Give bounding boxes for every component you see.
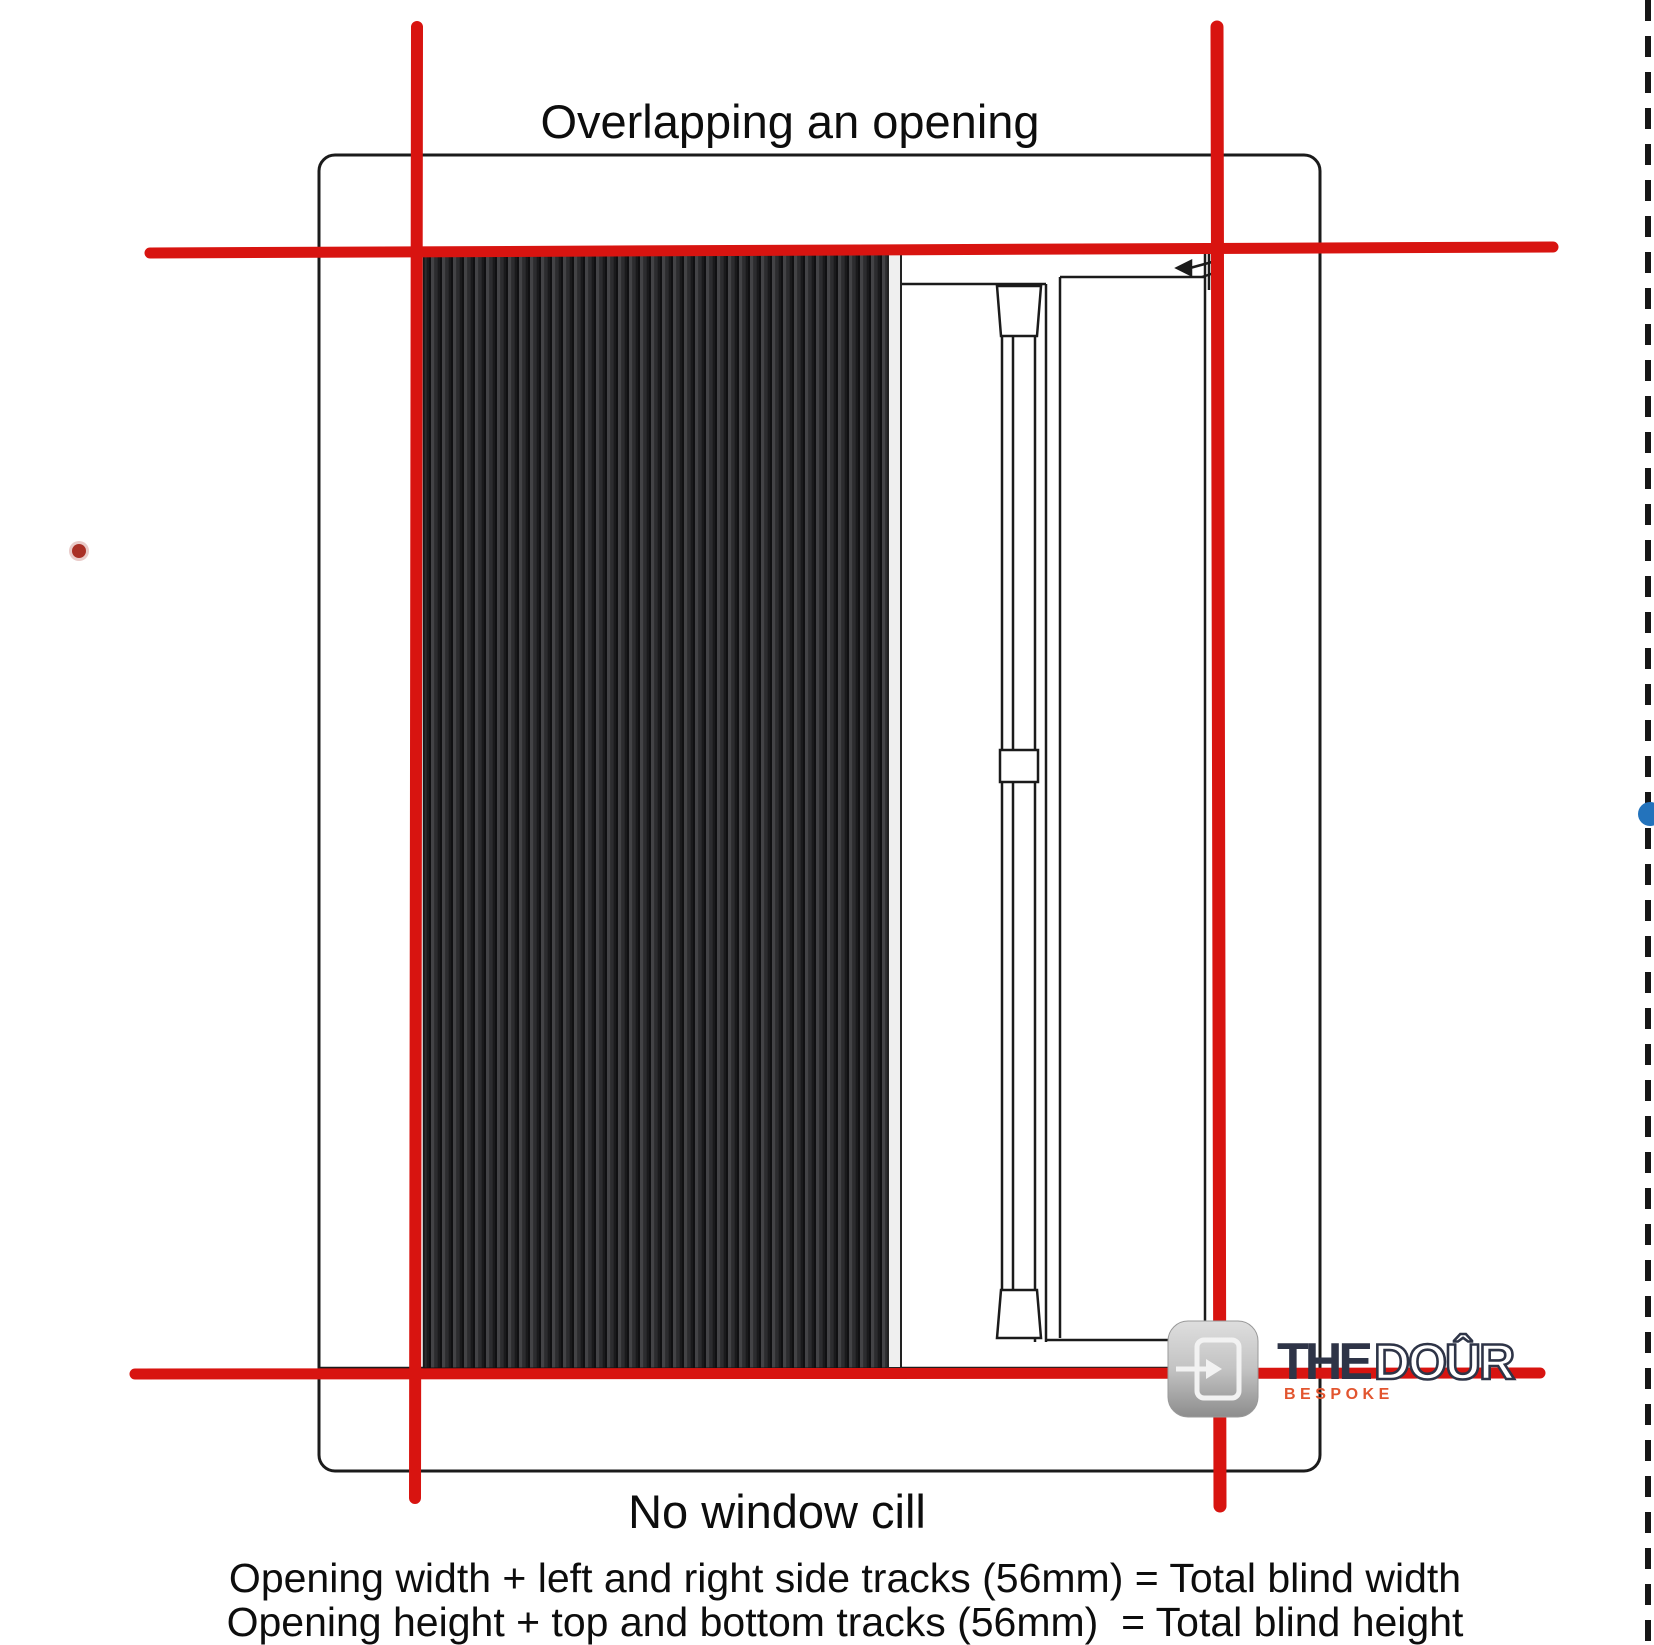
red-dot-marker [72, 544, 86, 558]
blue-dot-marker [1638, 802, 1654, 826]
diagram-title: Overlapping an opening [0, 94, 1580, 149]
measure-line-left [415, 27, 417, 1498]
brand-word-bespoke: BESPOKE [1284, 1386, 1394, 1403]
window-diagram: THE DOÛR BESPOKE [0, 0, 1654, 1643]
measuring-guide-page: THE DOÛR BESPOKE Overlapping an opening … [0, 0, 1654, 1643]
brand-word-door: DOÛR [1374, 1333, 1515, 1390]
pleated-blind [424, 251, 901, 1368]
brand-word-the: THE [1277, 1333, 1371, 1391]
pleated-blind-leading-rail [888, 251, 901, 1368]
stile-top-bracket [997, 286, 1041, 336]
measure-line-top [150, 247, 1553, 253]
formula-width: Opening width + left and right side trac… [36, 1556, 1654, 1600]
stile-handle [1000, 750, 1038, 782]
pleated-blind-fabric [424, 251, 888, 1368]
measurement-formulas: Opening width + left and right side trac… [36, 1556, 1654, 1644]
formula-height: Opening height + top and bottom tracks (… [36, 1600, 1654, 1644]
stile-bottom-bracket [997, 1290, 1041, 1338]
diagram-caption: No window cill [0, 1484, 1554, 1539]
measure-line-right [1217, 27, 1220, 1506]
brand-logo: THE DOÛR BESPOKE [1168, 1321, 1515, 1417]
